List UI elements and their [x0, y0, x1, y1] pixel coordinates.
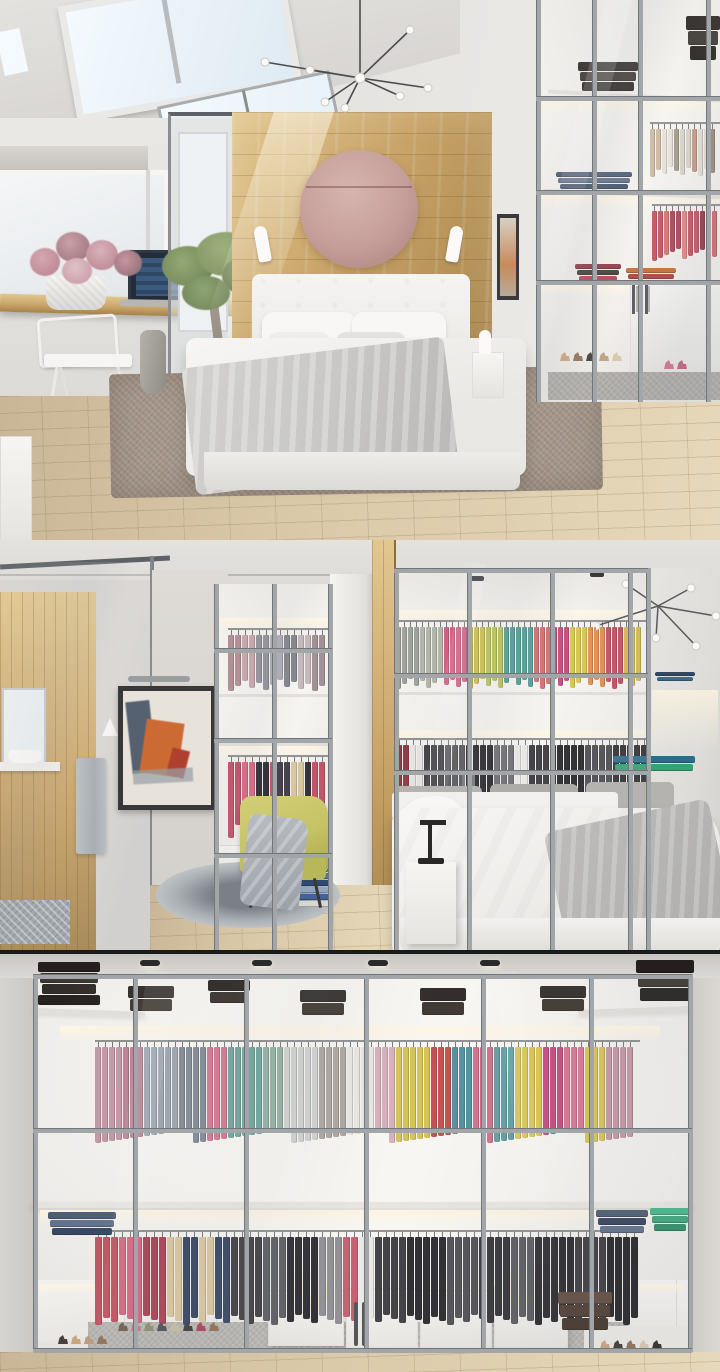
glass-mullion-horizontal — [33, 1128, 692, 1133]
glass-mullion-vertical — [467, 568, 472, 950]
glass-door-handle — [632, 284, 635, 314]
glass-mullion-vertical — [628, 568, 633, 950]
glass-mullion-horizontal — [33, 974, 692, 979]
glass-mullion-vertical — [550, 568, 555, 950]
glass-mullion-horizontal — [394, 770, 648, 775]
folded-layer — [294, 901, 330, 907]
panel-attic-bedroom — [0, 0, 720, 540]
glass-mullion-vertical — [638, 0, 643, 402]
panel-bedroom-closet — [0, 540, 720, 950]
desk-lamp-stem — [428, 822, 432, 862]
glass-mullion-vertical — [592, 0, 597, 402]
glass-mullion-horizontal — [536, 280, 720, 285]
glass-mullion-vertical — [688, 974, 693, 1352]
glass-mullion-vertical — [133, 978, 138, 1352]
sputnik-chandelier — [250, 0, 480, 130]
door-handle — [354, 1302, 358, 1346]
glass-mullion-vertical — [244, 978, 249, 1352]
glass-mullion-vertical — [706, 0, 711, 402]
interior-render-collage — [0, 0, 720, 1372]
glass-mullion-horizontal — [394, 673, 648, 678]
glass-mullion-vertical — [536, 0, 541, 402]
glass-mullion-vertical — [328, 584, 333, 950]
glass-door-handle — [645, 284, 648, 314]
glass-mullion-horizontal — [536, 190, 720, 195]
glass-mullion-vertical — [481, 978, 486, 1352]
glass-mullion-horizontal — [214, 738, 332, 743]
folded-layer — [636, 960, 694, 973]
glass-mullion-horizontal — [33, 1348, 692, 1353]
glass-mullion-vertical — [272, 584, 277, 950]
glass-mullion-horizontal — [214, 853, 332, 858]
folded-layer — [38, 962, 100, 972]
glass-mullion-horizontal — [394, 568, 648, 573]
glass-mullion-vertical — [33, 974, 38, 1352]
bedside-table — [406, 862, 456, 944]
glass-mullion-horizontal — [536, 96, 720, 101]
wood-floor-outside — [0, 1352, 720, 1372]
glass-mullion-vertical — [589, 978, 594, 1352]
glass-mullion-vertical — [214, 584, 219, 950]
glass-mullion-vertical — [646, 568, 651, 950]
desk-lamp-arm — [420, 820, 446, 825]
glass-mullion-vertical — [364, 978, 369, 1352]
desk-lamp-base — [418, 858, 444, 864]
panel-walkin-closet — [0, 950, 720, 1372]
glass-mullion-vertical — [394, 568, 399, 950]
glass-mullion-horizontal — [214, 648, 332, 653]
